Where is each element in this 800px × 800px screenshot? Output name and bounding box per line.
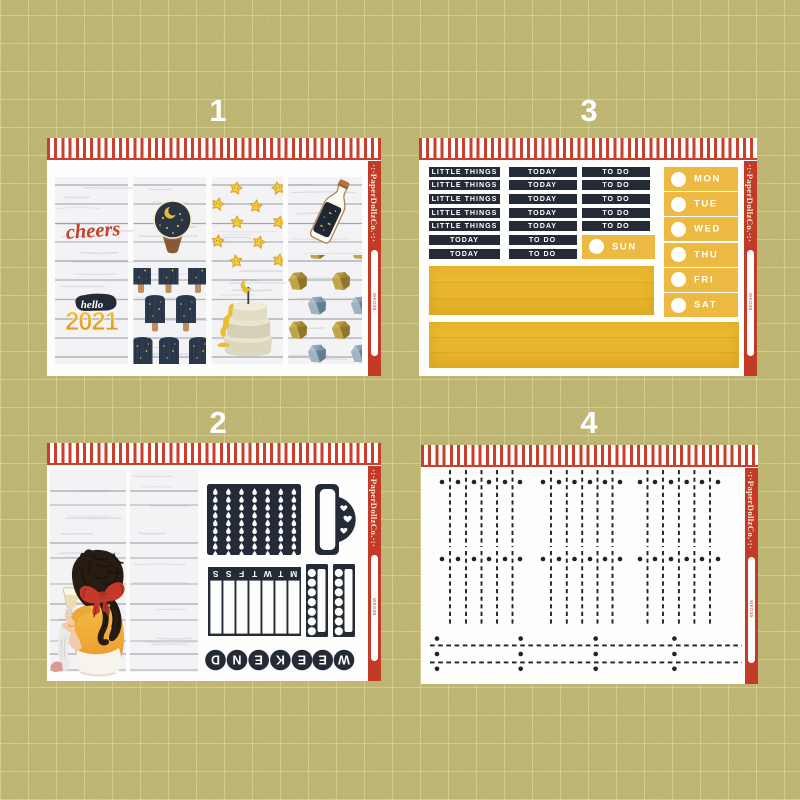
- svg-text:E: E: [319, 652, 327, 666]
- svg-text:W: W: [338, 652, 350, 666]
- svg-text:K: K: [276, 652, 285, 666]
- svg-text:T: T: [251, 569, 257, 579]
- svg-text:F: F: [239, 569, 244, 579]
- svg-text:E: E: [298, 652, 306, 666]
- svg-text:W: W: [263, 569, 272, 579]
- svg-text:cheers: cheers: [65, 218, 121, 244]
- svg-text:T: T: [277, 569, 283, 579]
- svg-text:D: D: [211, 652, 220, 666]
- svg-text:M: M: [290, 569, 297, 579]
- svg-text:S: S: [226, 569, 232, 579]
- svg-text:S: S: [213, 569, 219, 579]
- svg-text:E: E: [255, 652, 263, 666]
- svg-text:2021: 2021: [65, 308, 119, 336]
- svg-text:N: N: [232, 652, 241, 666]
